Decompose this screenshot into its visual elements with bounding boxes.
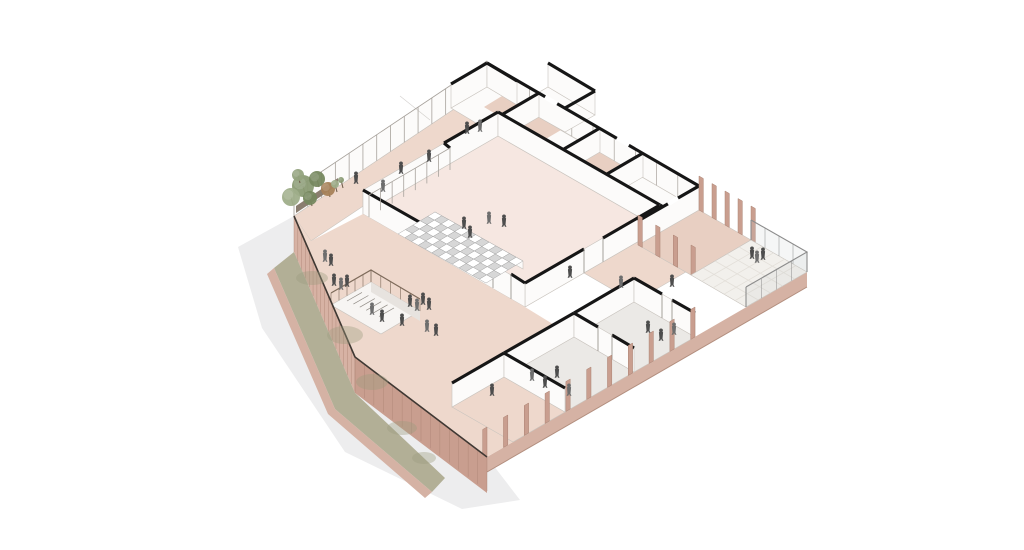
- axonometric-drawing: [0, 0, 1024, 550]
- person-figure: [670, 275, 675, 287]
- axonometric-floor-plan-canvas: [0, 0, 1024, 550]
- tree: [282, 188, 300, 206]
